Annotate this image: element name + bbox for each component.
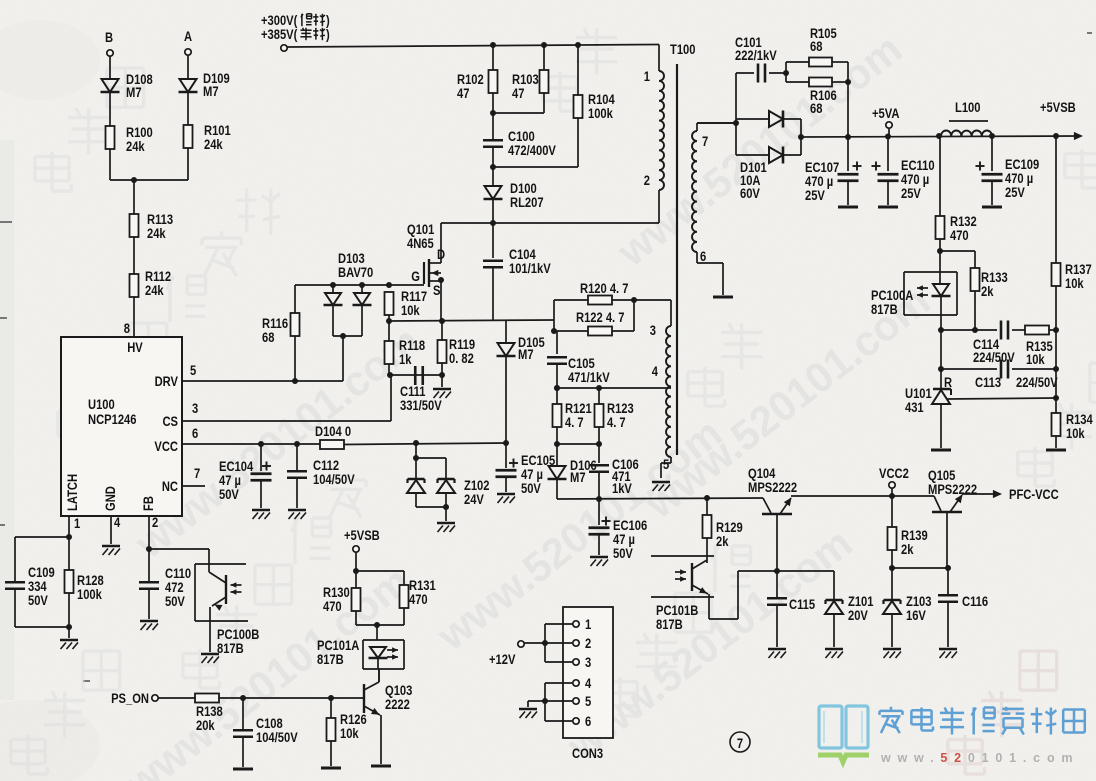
svg-text:CON3: CON3: [572, 746, 603, 761]
svg-text:PS_ON: PS_ON: [111, 691, 149, 706]
svg-text:5: 5: [585, 694, 591, 709]
svg-text:817B: 817B: [871, 302, 898, 317]
svg-text:NCP1246: NCP1246: [88, 412, 136, 427]
svg-text:NC: NC: [162, 479, 178, 494]
svg-text:M7: M7: [203, 84, 219, 99]
svg-text:24k: 24k: [204, 137, 224, 152]
svg-text:817B: 817B: [217, 641, 244, 656]
svg-text:25V: 25V: [805, 188, 825, 203]
svg-text:2k: 2k: [981, 284, 994, 299]
svg-text:6: 6: [700, 249, 706, 264]
svg-text:R122 4. 7: R122 4. 7: [576, 310, 624, 325]
svg-text:1k: 1k: [399, 352, 412, 367]
svg-text:472/400V: 472/400V: [508, 143, 556, 158]
svg-text:100k: 100k: [588, 106, 614, 121]
svg-text:www.520101.com: www.520101.com: [880, 751, 1079, 765]
svg-text:BAV70: BAV70: [338, 265, 373, 280]
svg-text:GND: GND: [103, 486, 118, 511]
svg-text:470: 470: [323, 599, 342, 614]
svg-text:4: 4: [585, 676, 591, 691]
svg-text:HV: HV: [127, 340, 143, 355]
svg-text:2k: 2k: [716, 534, 729, 549]
svg-text:M7: M7: [518, 347, 534, 362]
svg-text:M7: M7: [570, 470, 586, 485]
svg-text:10k: 10k: [401, 303, 421, 318]
svg-text:C116: C116: [962, 594, 988, 609]
svg-text:100k: 100k: [77, 587, 103, 602]
svg-text:8: 8: [124, 321, 130, 336]
svg-text:1: 1: [74, 516, 80, 531]
svg-text:G: G: [411, 269, 420, 284]
svg-text:68: 68: [262, 330, 274, 345]
svg-text:60V: 60V: [740, 186, 760, 201]
svg-text:6: 6: [585, 714, 591, 729]
svg-text:4. 7: 4. 7: [607, 415, 626, 430]
svg-text:+5VA: +5VA: [872, 106, 899, 121]
svg-text:104/50V: 104/50V: [313, 472, 355, 487]
svg-text:4. 7: 4. 7: [565, 415, 584, 430]
svg-text:1: 1: [585, 617, 591, 632]
svg-text:68: 68: [810, 101, 822, 116]
svg-text:2k: 2k: [901, 542, 914, 557]
svg-text:24k: 24k: [145, 283, 165, 298]
svg-text:101/1kV: 101/1kV: [509, 261, 551, 276]
svg-text:50V: 50V: [28, 593, 48, 608]
svg-text:DRV: DRV: [155, 374, 179, 389]
svg-text:2222: 2222: [385, 697, 410, 712]
svg-text:2: 2: [152, 515, 158, 530]
svg-text:C115: C115: [789, 597, 815, 612]
svg-text:50V: 50V: [165, 594, 185, 609]
svg-text:VCC: VCC: [154, 439, 178, 454]
svg-text:25V: 25V: [1005, 185, 1025, 200]
svg-text:T100: T100: [670, 42, 695, 57]
svg-text:7: 7: [702, 134, 708, 149]
svg-text:1: 1: [644, 69, 650, 84]
svg-text:10k: 10k: [340, 726, 360, 741]
svg-text:25V: 25V: [901, 186, 921, 201]
svg-text:+385V(: +385V(: [261, 27, 298, 42]
svg-text:D104 0: D104 0: [315, 424, 351, 439]
svg-text:3: 3: [650, 323, 656, 338]
svg-text:2: 2: [585, 636, 591, 651]
svg-text:): ): [326, 27, 330, 42]
svg-text:4: 4: [114, 515, 120, 530]
svg-text:817B: 817B: [317, 652, 344, 667]
svg-text:+5VSB: +5VSB: [344, 528, 380, 543]
svg-text:7: 7: [737, 736, 743, 751]
svg-text:47: 47: [512, 86, 524, 101]
svg-text:20k: 20k: [196, 718, 216, 733]
svg-text:LATCH: LATCH: [65, 474, 80, 511]
svg-text:24k: 24k: [126, 139, 146, 154]
svg-text:VCC2: VCC2: [879, 466, 909, 481]
svg-text:CS: CS: [162, 414, 178, 429]
svg-text:R120 4. 7: R120 4. 7: [580, 281, 628, 296]
svg-text:10k: 10k: [1026, 352, 1046, 367]
svg-text:224/50V: 224/50V: [1016, 375, 1058, 390]
svg-text:FB: FB: [141, 496, 156, 511]
svg-text:331/50V: 331/50V: [400, 398, 442, 413]
svg-text:6: 6: [192, 426, 198, 441]
svg-text:U100: U100: [88, 397, 115, 412]
svg-text:50V: 50V: [613, 546, 633, 561]
svg-text:0. 82: 0. 82: [449, 351, 474, 366]
svg-text:104/50V: 104/50V: [256, 730, 298, 745]
svg-text:470: 470: [409, 592, 428, 607]
svg-text:222/1kV: 222/1kV: [735, 48, 777, 63]
svg-text:431: 431: [905, 400, 924, 415]
svg-text:S: S: [433, 283, 440, 298]
svg-text:10k: 10k: [1066, 426, 1086, 441]
svg-text:817B: 817B: [656, 617, 683, 632]
svg-text:2: 2: [644, 173, 650, 188]
svg-text:B: B: [105, 30, 113, 45]
svg-text:L100: L100: [955, 100, 980, 115]
svg-text:RL207: RL207: [510, 195, 544, 210]
svg-text:24k: 24k: [147, 226, 167, 241]
svg-text:50V: 50V: [219, 487, 239, 502]
svg-text:M7: M7: [126, 85, 142, 100]
svg-text:A: A: [184, 29, 192, 44]
svg-text:50V: 50V: [521, 481, 541, 496]
svg-text:D: D: [437, 247, 445, 262]
svg-text:5: 5: [190, 363, 196, 378]
svg-text:16V: 16V: [906, 608, 926, 623]
svg-text:10k: 10k: [1065, 276, 1085, 291]
svg-text:3: 3: [192, 401, 198, 416]
svg-text:68: 68: [810, 39, 822, 54]
svg-text:470: 470: [950, 228, 969, 243]
svg-text:471/1kV: 471/1kV: [568, 370, 610, 385]
svg-text:C113: C113: [975, 375, 1001, 390]
svg-text:+5VSB: +5VSB: [1040, 100, 1076, 115]
svg-text:+12V: +12V: [489, 652, 516, 667]
svg-text:47: 47: [457, 86, 469, 101]
svg-text:PFC-VCC: PFC-VCC: [1009, 487, 1059, 502]
svg-text:24V: 24V: [464, 492, 484, 507]
svg-text:4N65: 4N65: [407, 236, 434, 251]
svg-text:MPS2222: MPS2222: [928, 482, 977, 497]
svg-text:7: 7: [194, 466, 200, 481]
svg-text:4: 4: [652, 364, 658, 379]
svg-text:5: 5: [663, 457, 669, 472]
svg-text:3: 3: [585, 655, 591, 670]
svg-text:1kV: 1kV: [612, 481, 632, 496]
svg-text:MPS2222: MPS2222: [748, 480, 797, 495]
svg-text:20V: 20V: [848, 608, 868, 623]
